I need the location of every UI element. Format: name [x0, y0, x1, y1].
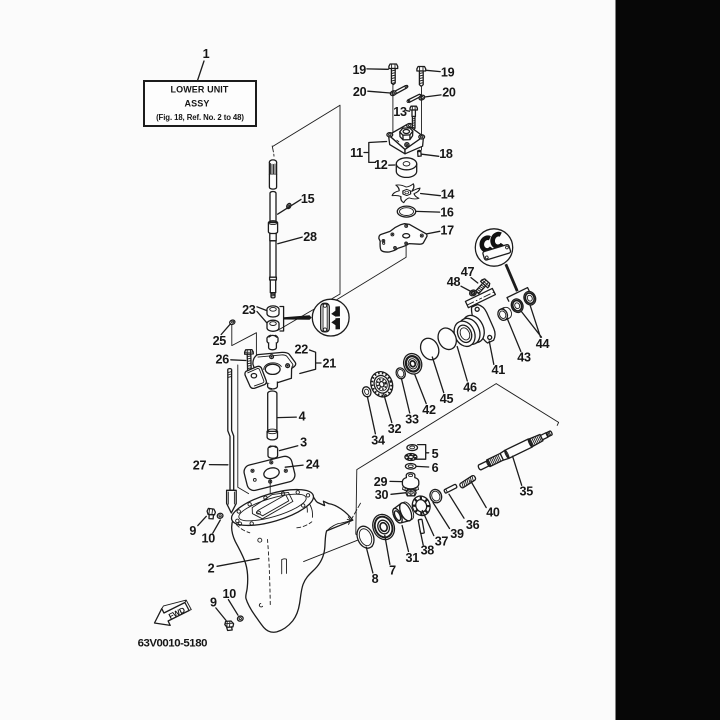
svg-text:46: 46 — [463, 381, 477, 395]
svg-text:9: 9 — [189, 524, 196, 538]
svg-text:LOWER UNIT: LOWER UNIT — [171, 84, 229, 94]
svg-text:17: 17 — [440, 224, 454, 238]
svg-text:10: 10 — [201, 532, 215, 546]
svg-text:29: 29 — [374, 475, 388, 489]
svg-text:16: 16 — [440, 205, 454, 219]
svg-text:27: 27 — [193, 459, 207, 473]
svg-text:41: 41 — [491, 363, 505, 377]
svg-text:31: 31 — [405, 551, 419, 565]
svg-text:38: 38 — [421, 543, 435, 557]
svg-text:39: 39 — [450, 527, 464, 541]
svg-text:20: 20 — [353, 85, 367, 99]
svg-text:8: 8 — [372, 572, 379, 586]
svg-text:3: 3 — [300, 435, 307, 449]
svg-text:15: 15 — [301, 192, 315, 206]
svg-text:43: 43 — [517, 351, 531, 365]
svg-text:(Fig. 18, Ref. No. 2 to 48): (Fig. 18, Ref. No. 2 to 48) — [156, 113, 244, 122]
svg-text:30: 30 — [375, 488, 389, 502]
svg-text:37: 37 — [435, 535, 449, 549]
svg-text:21: 21 — [322, 357, 336, 371]
svg-text:28: 28 — [303, 230, 317, 244]
svg-text:24: 24 — [306, 458, 320, 472]
svg-text:45: 45 — [440, 392, 454, 406]
svg-text:25: 25 — [213, 334, 227, 348]
svg-text:48: 48 — [447, 275, 461, 289]
svg-text:11: 11 — [350, 146, 363, 160]
svg-text:20: 20 — [442, 86, 456, 100]
svg-text:12: 12 — [374, 158, 388, 172]
svg-text:ASSY: ASSY — [185, 99, 210, 109]
svg-text:2: 2 — [208, 562, 215, 576]
svg-text:32: 32 — [388, 422, 402, 436]
svg-text:1: 1 — [203, 47, 210, 61]
svg-text:42: 42 — [422, 403, 436, 417]
svg-text:23: 23 — [242, 303, 256, 317]
svg-text:4: 4 — [299, 410, 306, 424]
svg-text:5: 5 — [432, 447, 439, 461]
svg-text:22: 22 — [294, 343, 308, 357]
svg-text:36: 36 — [466, 518, 480, 532]
svg-text:7: 7 — [389, 564, 396, 578]
svg-text:40: 40 — [486, 505, 500, 519]
svg-text:19: 19 — [441, 66, 455, 80]
svg-text:18: 18 — [439, 147, 453, 161]
svg-text:34: 34 — [371, 434, 385, 448]
svg-text:26: 26 — [215, 353, 229, 367]
svg-text:35: 35 — [519, 485, 533, 499]
svg-text:44: 44 — [536, 337, 550, 351]
svg-text:47: 47 — [461, 265, 475, 279]
svg-text:13: 13 — [393, 105, 407, 119]
svg-text:10: 10 — [222, 587, 236, 601]
svg-text:19: 19 — [352, 63, 366, 77]
svg-text:14: 14 — [441, 188, 455, 202]
svg-text:33: 33 — [405, 413, 419, 427]
svg-text:63V0010-5180: 63V0010-5180 — [138, 638, 207, 650]
svg-text:6: 6 — [432, 461, 439, 475]
